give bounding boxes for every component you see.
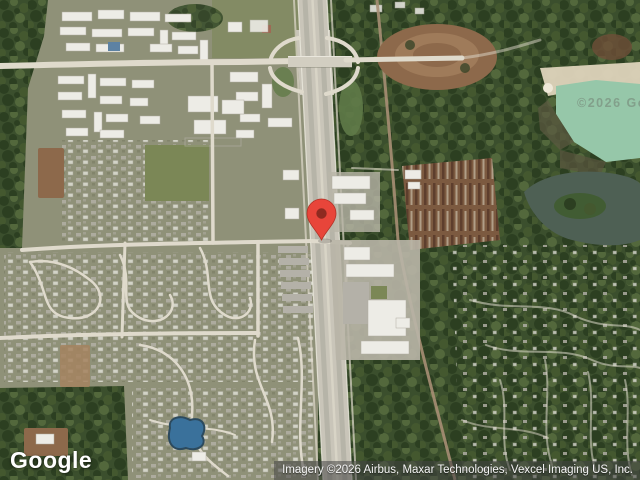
google-logo[interactable]: Google	[10, 447, 92, 474]
map-watermark: ©2026 Go	[577, 96, 640, 110]
lumber-yard	[402, 158, 500, 250]
imagery-attribution: Imagery ©2026 Airbus, Maxar Technologies…	[274, 461, 640, 480]
satellite-imagery[interactable]	[0, 0, 640, 480]
map-viewport: ©2026 Go Google Imagery ©2026 Airbus, Ma…	[0, 0, 640, 480]
